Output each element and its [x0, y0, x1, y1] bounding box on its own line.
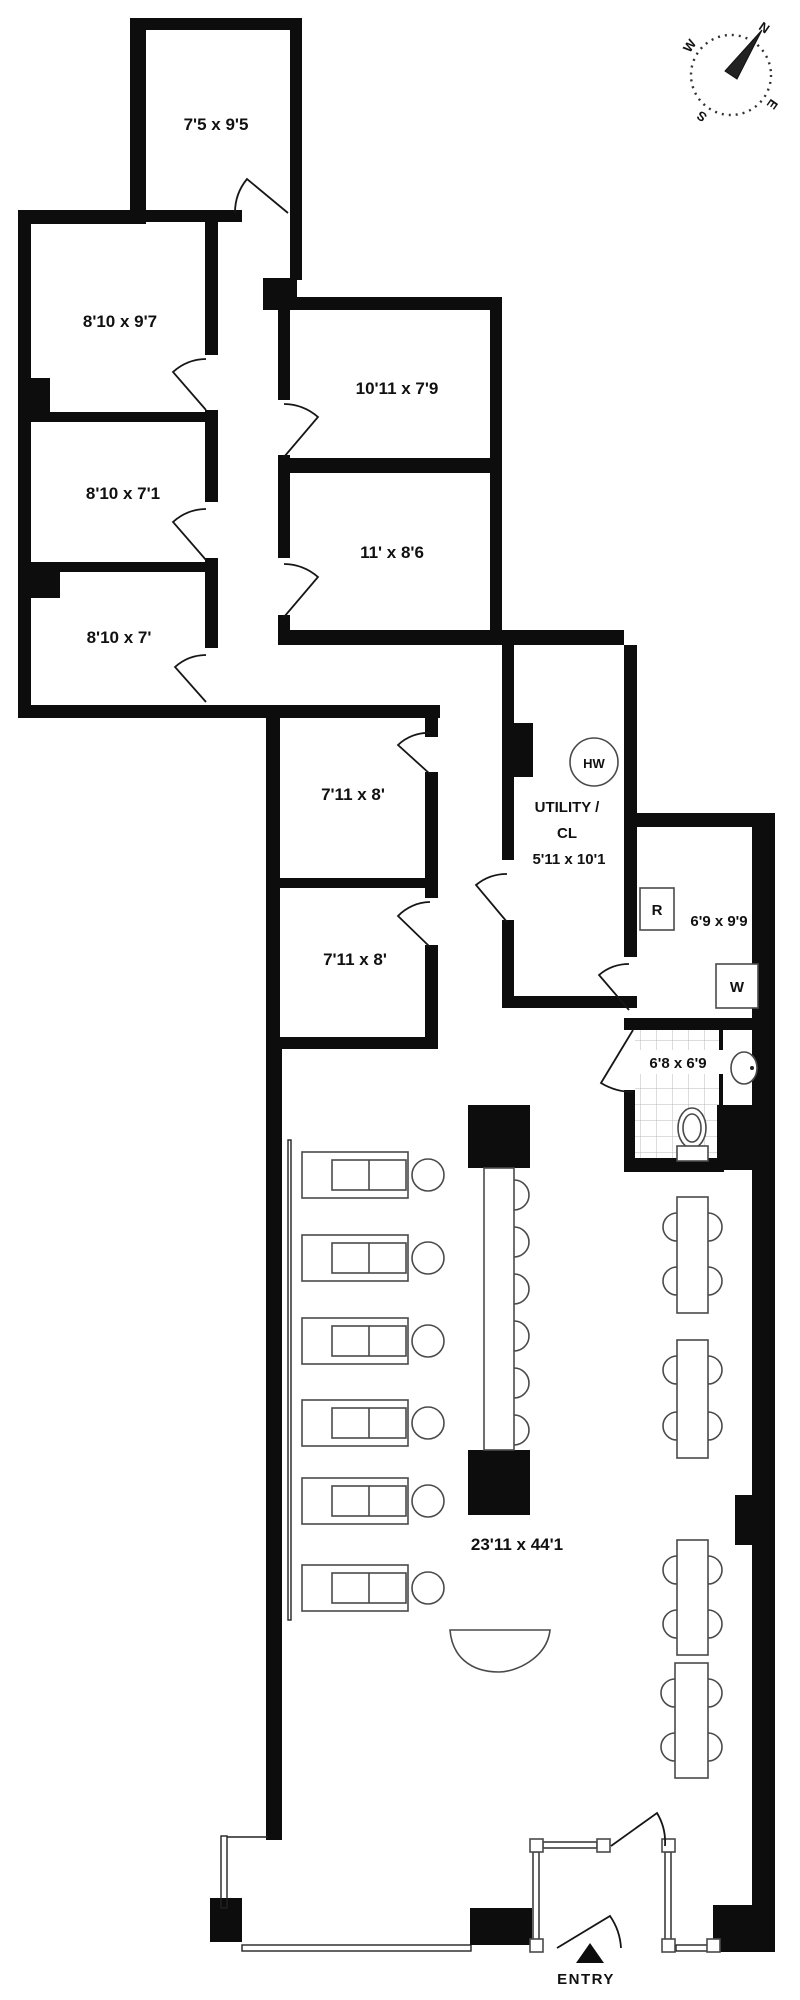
- counter: [484, 1168, 514, 1450]
- table: [661, 1663, 722, 1778]
- vestibule-glass-right: [665, 1852, 671, 1940]
- counter-bar: [484, 1168, 529, 1450]
- stool-icon: [514, 1368, 529, 1398]
- washer-label: W: [730, 979, 745, 996]
- compass-e: E: [764, 96, 781, 112]
- chair-icon: [663, 1213, 677, 1241]
- wall-column: [263, 278, 297, 310]
- desk: [302, 1565, 444, 1611]
- wall-segment: [278, 297, 290, 400]
- chair-icon: [661, 1733, 675, 1761]
- room-label-d: 10'11 x 7'9: [356, 379, 439, 398]
- desk-row: [302, 1152, 444, 1611]
- wall-segment: [290, 297, 502, 310]
- wall-segment: [266, 878, 438, 888]
- meeting-tables: [661, 1197, 722, 1778]
- chair-icon: [708, 1267, 722, 1295]
- chair-icon: [663, 1556, 677, 1584]
- bathroom-tile-floor: [635, 1030, 723, 1158]
- chair-icon: [708, 1412, 722, 1440]
- stool-icon: [514, 1415, 529, 1445]
- desk: [302, 1400, 444, 1446]
- stool-icon: [514, 1227, 529, 1257]
- mullion-post: [662, 1839, 675, 1852]
- table: [663, 1340, 722, 1458]
- chair-icon: [708, 1733, 722, 1761]
- door-room-f2: [398, 902, 430, 947]
- door-room-c: [175, 655, 206, 702]
- wall-segment: [283, 458, 502, 473]
- wall-segment: [146, 210, 242, 222]
- wall-segment: [205, 410, 218, 502]
- entry-vestibule: [530, 1813, 720, 1963]
- window-left-inner: [288, 1140, 291, 1620]
- door-room-e: [284, 564, 318, 617]
- desk: [302, 1152, 444, 1198]
- room-labels: 7'5 x 9'5 8'10 x 9'7 8'10 x 7'1 8'10 x 7…: [83, 115, 748, 1988]
- chair-icon: [708, 1610, 722, 1638]
- wall-segment: [205, 210, 218, 355]
- entry-label: ENTRY: [557, 1971, 615, 1988]
- chair-icon: [661, 1679, 675, 1707]
- utility-label-2: CL: [557, 825, 577, 842]
- refrigerator-label: R: [652, 902, 663, 919]
- wall-segment: [205, 558, 218, 648]
- wall-segment: [425, 772, 438, 898]
- mullion-post: [597, 1839, 610, 1852]
- wall-segment: [31, 412, 207, 422]
- vestibule-glass-top: [543, 1842, 597, 1848]
- compass-w: W: [680, 36, 700, 55]
- wall-segment: [290, 18, 302, 280]
- chair-icon: [412, 1242, 444, 1274]
- entry-door: [557, 1916, 621, 1948]
- wall-segment: [624, 1018, 752, 1030]
- chair-icon: [663, 1267, 677, 1295]
- room-label-b: 8'10 x 7'1: [86, 484, 160, 503]
- wall-column: [470, 1908, 532, 1945]
- stool-icon: [514, 1180, 529, 1210]
- wall-segment: [130, 18, 302, 30]
- window-bottom-left: [242, 1945, 471, 1951]
- wall-column: [25, 562, 60, 598]
- wall-segment: [502, 920, 514, 1005]
- mullion-post: [530, 1939, 543, 1952]
- door-room-b: [173, 509, 206, 560]
- desk: [302, 1318, 444, 1364]
- room-label-a: 8'10 x 9'7: [83, 312, 157, 331]
- wall-segment: [624, 1090, 635, 1163]
- wall-segment: [502, 996, 637, 1008]
- door-room-d: [284, 404, 318, 457]
- chair-icon: [412, 1325, 444, 1357]
- windows: [221, 1140, 714, 1951]
- wall-segment: [278, 630, 624, 645]
- wall-segment: [425, 945, 438, 1045]
- wall-segment: [18, 705, 440, 718]
- bathroom-label: 6'8 x 6'9: [649, 1055, 706, 1072]
- stool-icon: [514, 1321, 529, 1351]
- desk: [302, 1478, 444, 1524]
- wall-segment: [624, 645, 637, 957]
- desk: [302, 1235, 444, 1281]
- floor-plan: N E S W 7'5 x 9'5 8'10 x 9'7 8'10 x 7'1 …: [0, 0, 800, 2000]
- toilet-tank-icon: [677, 1146, 708, 1161]
- chair-icon: [708, 1556, 722, 1584]
- floor-plan-drawing: N E S W 7'5 x 9'5 8'10 x 9'7 8'10 x 7'1 …: [0, 0, 800, 2000]
- door-bathroom: [601, 1030, 633, 1092]
- chair-icon: [708, 1356, 722, 1384]
- chair-icon: [708, 1679, 722, 1707]
- structural-column: [468, 1450, 530, 1515]
- door-room-a: [173, 359, 206, 410]
- main-room-label: 23'11 x 44'1: [471, 1535, 563, 1554]
- utility-label-1: UTILITY /: [535, 799, 601, 816]
- utility-label-3: 5'11 x 10'1: [532, 851, 605, 868]
- room-label-e: 11' x 8'6: [360, 543, 424, 562]
- chair-icon: [663, 1610, 677, 1638]
- walls: [18, 18, 775, 1942]
- wall-segment: [130, 18, 146, 222]
- chair-icon: [708, 1213, 722, 1241]
- wall-segment: [18, 210, 146, 224]
- window-left: [221, 1836, 227, 1908]
- compass-rose: N E S W: [680, 19, 781, 125]
- compass-needle-icon: [725, 30, 762, 79]
- wall-segment: [490, 297, 502, 645]
- stool-icon: [514, 1274, 529, 1304]
- door-utility: [476, 874, 507, 922]
- wall-segment: [18, 210, 31, 718]
- chair-icon: [412, 1572, 444, 1604]
- compass-s: S: [694, 108, 710, 125]
- laundry-room-label: 6'9 x 9'9: [690, 913, 747, 930]
- door-top-room: [235, 179, 288, 213]
- room-label-f1: 7'11 x 8': [321, 785, 385, 804]
- wall-column: [713, 1905, 775, 1952]
- chair-icon: [412, 1159, 444, 1191]
- reception-desk: [450, 1630, 550, 1672]
- water-heater-label: HW: [583, 756, 605, 771]
- chair-icon: [663, 1356, 677, 1384]
- mullion-post: [530, 1839, 543, 1852]
- table: [663, 1540, 722, 1655]
- table: [663, 1197, 722, 1313]
- wall-segment: [624, 1158, 724, 1172]
- mullion-post: [707, 1939, 720, 1952]
- wall-column: [27, 378, 50, 414]
- mullion-post: [662, 1939, 675, 1952]
- entry-arrow-icon: [576, 1943, 604, 1963]
- wall-column: [502, 723, 533, 777]
- room-label-top: 7'5 x 9'5: [184, 115, 249, 134]
- vestibule-inner-door: [611, 1813, 665, 1846]
- wall-column: [717, 1105, 775, 1170]
- chair-icon: [412, 1407, 444, 1439]
- door-room-f1: [398, 733, 430, 774]
- chair-icon: [412, 1485, 444, 1517]
- vestibule-glass-left: [533, 1852, 539, 1940]
- wall-segment: [624, 1018, 635, 1028]
- faucet-icon: [750, 1066, 754, 1070]
- wall-segment: [266, 705, 280, 1045]
- wall-segment: [266, 1037, 438, 1049]
- structural-column: [468, 1105, 530, 1168]
- room-label-f2: 7'11 x 8': [323, 950, 387, 969]
- wall-column: [735, 1495, 775, 1545]
- chair-icon: [663, 1412, 677, 1440]
- wall-segment: [266, 1045, 282, 1840]
- room-label-c: 8'10 x 7': [87, 628, 152, 647]
- wall-column: [210, 1898, 242, 1942]
